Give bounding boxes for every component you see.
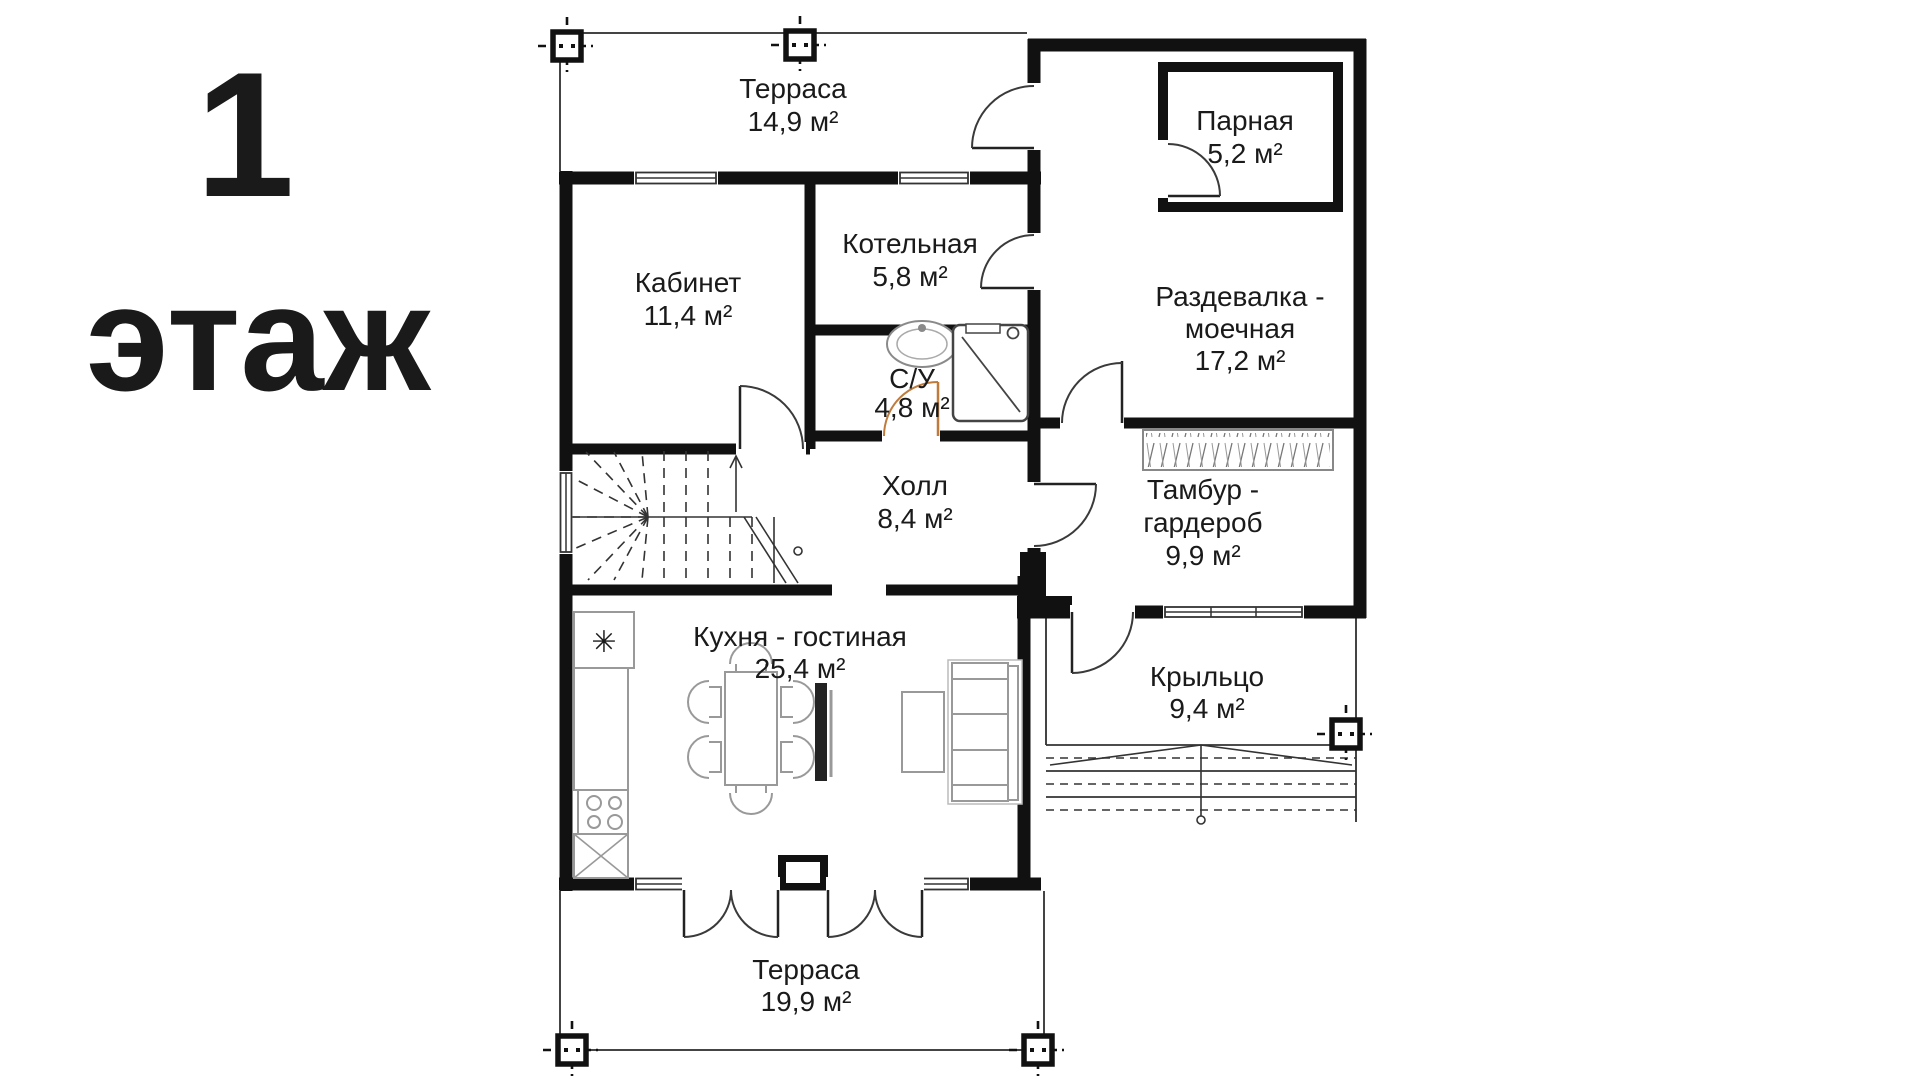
- room-area: 11,4 м²: [644, 300, 733, 331]
- room-label-terrace-bottom: Терраса 19,9 м²: [752, 954, 860, 1017]
- room-labels: Терраса 14,9 м² Парная 5,2 м² Кабинет 11…: [635, 73, 1325, 1017]
- room-name: гардероб: [1143, 507, 1262, 538]
- room-name: Терраса: [739, 73, 847, 104]
- door-terrace-top: [972, 83, 1041, 150]
- room-label-changing-room: Раздевалка - моечная 17,2 м²: [1155, 281, 1324, 376]
- room-label-vestibule: Тамбур - гардероб 9,9 м²: [1143, 474, 1262, 571]
- pillar: [778, 855, 828, 890]
- door-boiler: [981, 233, 1041, 290]
- room-area: 19,9 м²: [761, 986, 852, 1017]
- room-name: Крыльцо: [1150, 661, 1264, 692]
- room-area: 5,2 м²: [1207, 138, 1282, 169]
- room-name: Кухня - гостиная: [693, 621, 907, 652]
- room-name: Терраса: [752, 954, 860, 985]
- wardrobe: [1143, 430, 1333, 470]
- room-name: Раздевалка -: [1155, 281, 1324, 312]
- door-office: [736, 386, 806, 456]
- room-name: Котельная: [842, 228, 978, 259]
- room-area: 25,4 м²: [755, 653, 846, 684]
- floor-plan-page: 1 этаж: [0, 0, 1920, 1080]
- window-office: [634, 170, 718, 186]
- window-kitchen-left: [634, 876, 686, 892]
- bathroom-sink: [887, 321, 957, 367]
- tv: [815, 683, 831, 781]
- staircase: [572, 451, 802, 583]
- stove: [578, 790, 628, 834]
- door-hall-vestibule: [1027, 482, 1096, 548]
- room-label-porch: Крыльцо 9,4 м²: [1150, 661, 1264, 724]
- room-area: 9,4 м²: [1169, 693, 1244, 724]
- dining-table: [725, 672, 777, 785]
- column-marker: [771, 16, 829, 74]
- window-boiler: [898, 170, 970, 186]
- room-area: 8,4 м²: [877, 503, 952, 534]
- room-area: 17,2 м²: [1195, 345, 1286, 376]
- kitchen-sink-cabinet: [574, 834, 628, 878]
- room-name: Парная: [1196, 105, 1293, 136]
- room-label-office: Кабинет 11,4 м²: [635, 267, 742, 331]
- floor-title: 1 этаж: [86, 35, 432, 422]
- window-vestibule: [1163, 605, 1304, 619]
- french-door-right: [826, 877, 924, 937]
- room-name: Кабинет: [635, 267, 742, 298]
- porch-steps: [1046, 745, 1356, 824]
- floor-plan-drawing: 1 этаж: [0, 0, 1920, 1080]
- room-name: Тамбур -: [1147, 474, 1259, 505]
- fridge: ✳: [574, 612, 634, 668]
- steam-room-inner-walls: [1163, 67, 1338, 207]
- room-label-bathroom: С/У 4,8 м²: [874, 363, 949, 423]
- wall-junction-block: [1017, 596, 1072, 618]
- room-area: 9,9 м²: [1165, 540, 1240, 571]
- chair: [781, 736, 814, 778]
- floor-number: 1: [196, 35, 295, 234]
- coffee-table: [902, 692, 944, 772]
- room-label-hall: Холл 8,4 м²: [877, 470, 952, 534]
- room-area: 14,9 м²: [748, 106, 839, 137]
- room-label-terrace-top: Терраса 14,9 м²: [739, 73, 847, 137]
- chair: [781, 681, 814, 723]
- french-door-left: [682, 877, 780, 937]
- room-name: С/У: [889, 363, 935, 394]
- column-marker: [538, 17, 596, 75]
- window-kitchen-right: [920, 876, 970, 892]
- chair: [688, 681, 721, 723]
- chair: [688, 736, 721, 778]
- kitchen-counter: [574, 668, 628, 790]
- window-stairs: [558, 471, 574, 554]
- floor-word: этаж: [86, 254, 432, 422]
- snowflake-icon: ✳: [591, 626, 616, 659]
- shower: [953, 324, 1028, 421]
- door-changing-room: [1060, 361, 1124, 430]
- room-label-boiler: Котельная 5,8 м²: [842, 228, 978, 292]
- room-name: моечная: [1185, 313, 1295, 344]
- column-marker: [1317, 705, 1375, 763]
- door-entrance: [1070, 605, 1135, 673]
- sofa: [948, 660, 1022, 804]
- room-area: 4,8 м²: [874, 392, 949, 423]
- room-area: 5,8 м²: [872, 261, 947, 292]
- room-name: Холл: [882, 470, 948, 501]
